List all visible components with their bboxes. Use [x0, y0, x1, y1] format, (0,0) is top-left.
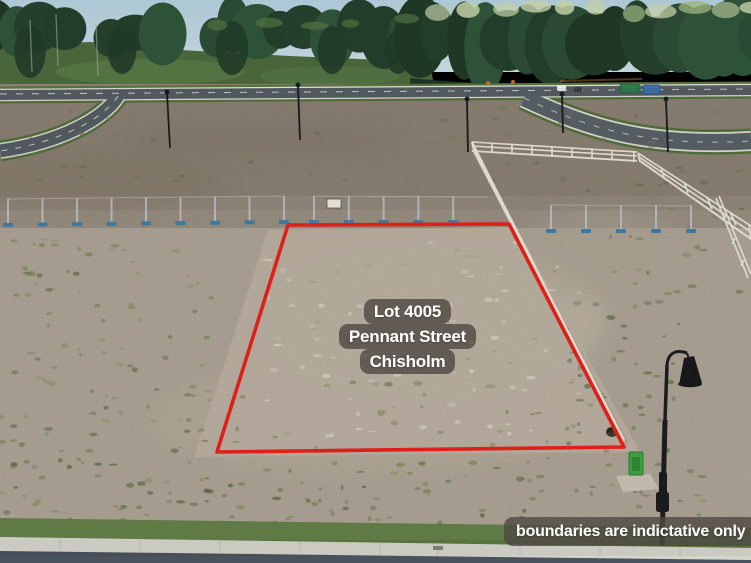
photo-grain	[0, 88, 751, 556]
photo-scene	[0, 0, 751, 563]
boundary-disclaimer-label: boundaries are indictative only	[504, 517, 751, 546]
aerial-photo-vacant-lot: Lot 4005 Pennant Street Chisholm boundar…	[0, 0, 751, 563]
